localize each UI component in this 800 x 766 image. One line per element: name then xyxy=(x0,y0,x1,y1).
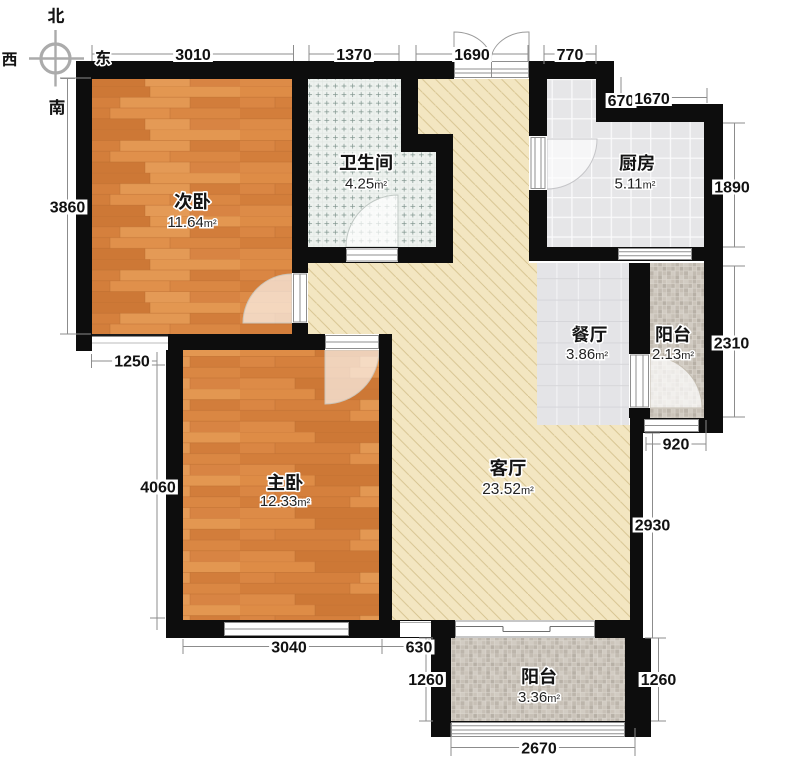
svg-text:4060: 4060 xyxy=(140,480,176,497)
svg-text:1690: 1690 xyxy=(454,47,490,64)
svg-text:3010: 3010 xyxy=(175,47,211,64)
svg-text:2310: 2310 xyxy=(714,336,750,353)
svg-text:1890: 1890 xyxy=(714,180,750,197)
svg-text:1370: 1370 xyxy=(336,47,372,64)
svg-text:2670: 2670 xyxy=(521,741,557,758)
svg-text:1260: 1260 xyxy=(408,672,444,689)
svg-text:670: 670 xyxy=(608,93,635,110)
svg-text:2930: 2930 xyxy=(635,518,671,535)
svg-text:1260: 1260 xyxy=(641,672,677,689)
svg-text:3040: 3040 xyxy=(271,640,307,657)
svg-text:630: 630 xyxy=(406,640,433,657)
svg-text:1250: 1250 xyxy=(114,354,150,371)
svg-text:770: 770 xyxy=(557,47,584,64)
svg-text:920: 920 xyxy=(663,437,690,454)
svg-text:1670: 1670 xyxy=(634,91,670,108)
svg-text:3860: 3860 xyxy=(50,200,86,217)
